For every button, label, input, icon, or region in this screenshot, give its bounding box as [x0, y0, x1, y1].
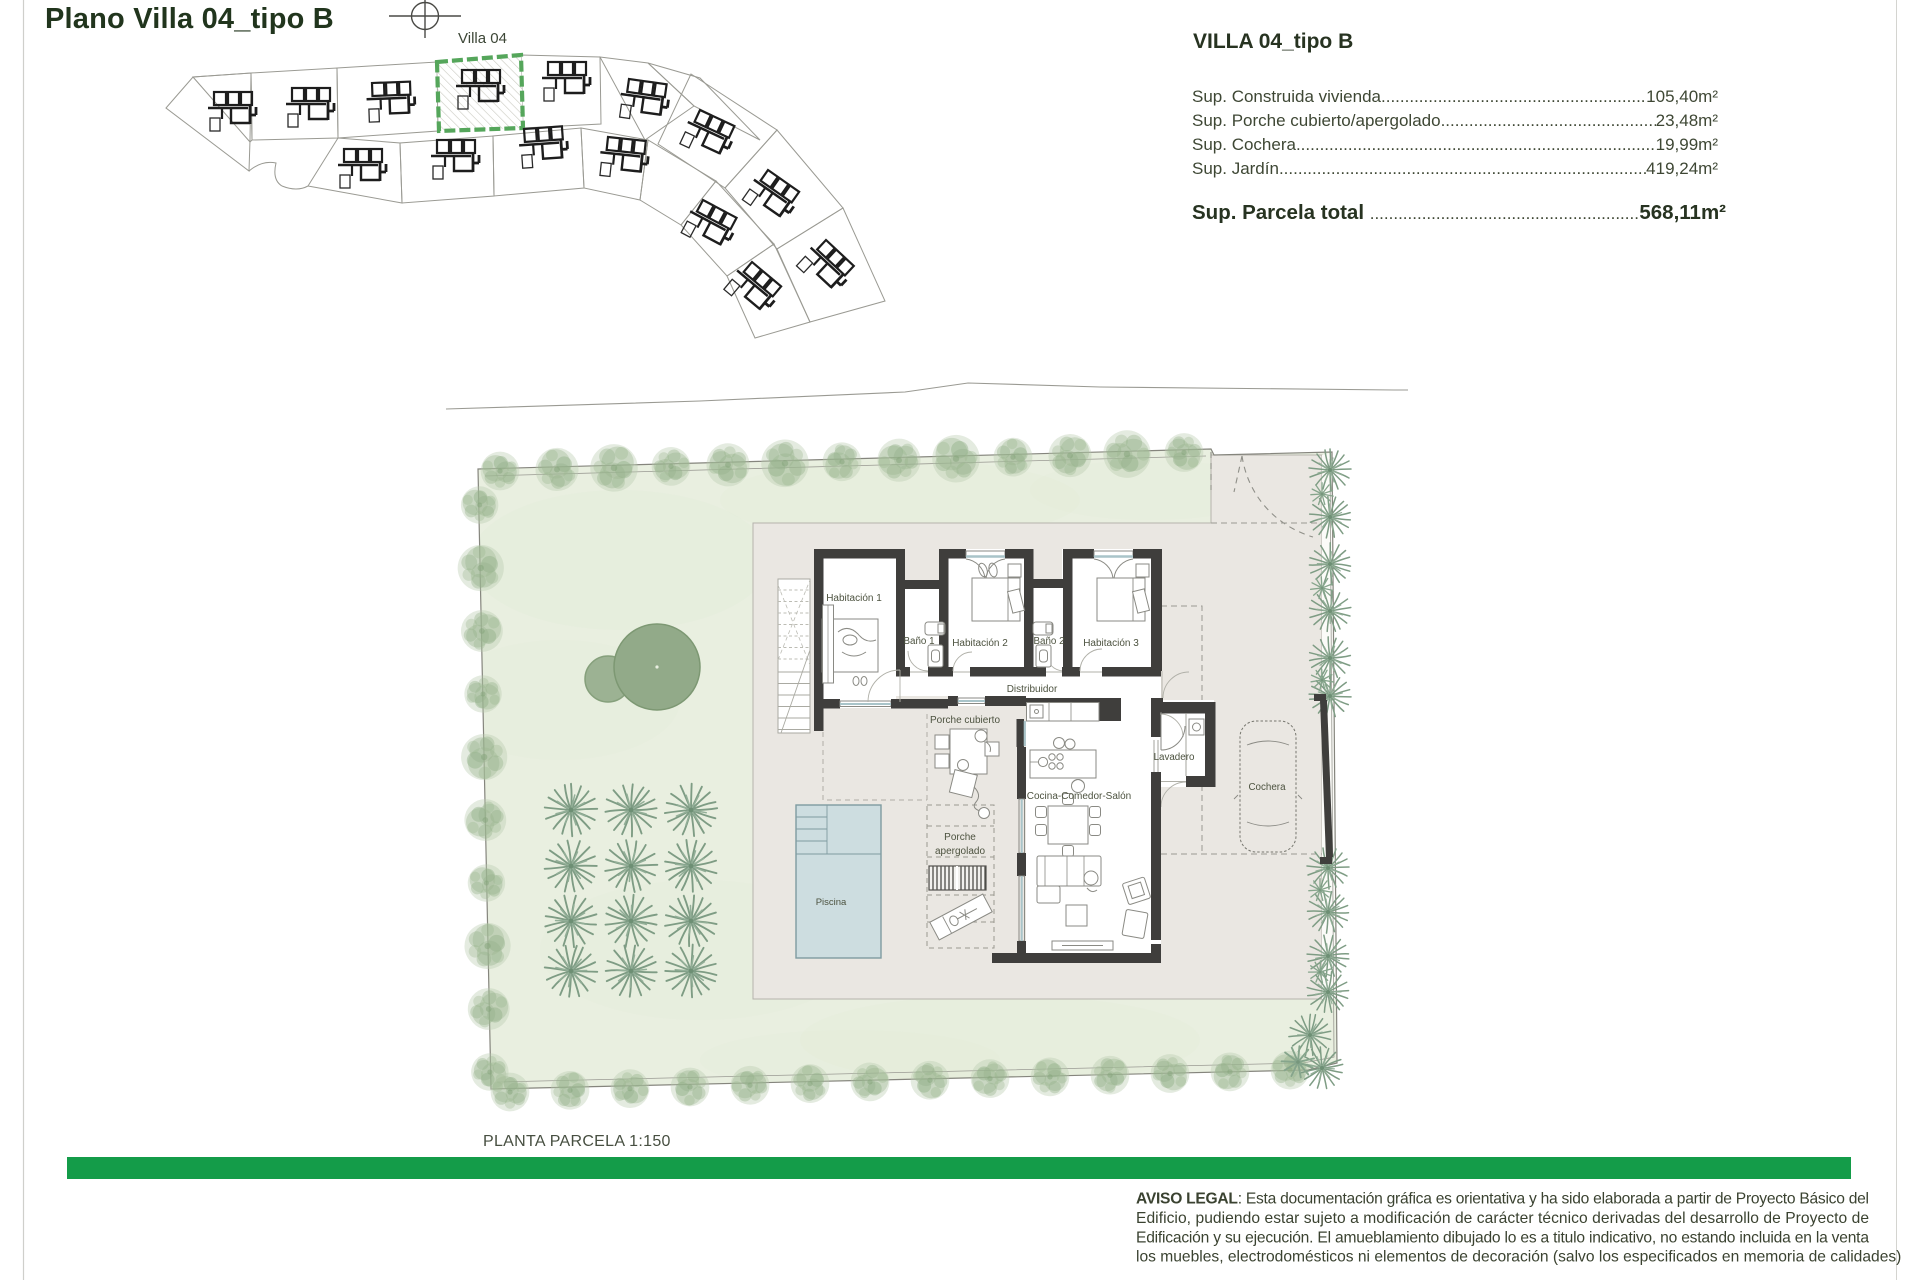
svg-text:Porche: Porche	[944, 832, 976, 843]
svg-text:los muebles, electrodomésticos: los muebles, electrodomésticos ni elemen…	[1136, 1249, 1901, 1266]
svg-text:Habitación 3: Habitación 3	[1083, 638, 1139, 649]
svg-text:Baño 1: Baño 1	[903, 636, 934, 647]
svg-text:AVISO LEGAL: Esta documentació: AVISO LEGAL: Esta documentación gráfica …	[1136, 1191, 1869, 1208]
svg-text:Cochera: Cochera	[1248, 782, 1286, 793]
svg-text:Porche cubierto: Porche cubierto	[930, 715, 1000, 726]
svg-text:Edificio, pudiendo estar sujet: Edificio, pudiendo estar sujeto a modifi…	[1136, 1210, 1869, 1227]
svg-text:Lavadero: Lavadero	[1154, 752, 1195, 763]
svg-text:apergolado: apergolado	[935, 846, 985, 857]
svg-text:Villa 04: Villa 04	[458, 30, 507, 47]
svg-text:Habitación 1: Habitación 1	[826, 593, 882, 604]
svg-text:Cocina-Comedor-Salón: Cocina-Comedor-Salón	[1027, 791, 1132, 802]
svg-text:Piscina: Piscina	[816, 897, 847, 908]
svg-text:Baño 2: Baño 2	[1033, 636, 1064, 647]
svg-text:Edificación y su ejecución. El: Edificación y su ejecución. El amueblami…	[1136, 1229, 1869, 1246]
svg-text:Distribuidor: Distribuidor	[1007, 684, 1058, 695]
svg-text:Habitación 2: Habitación 2	[952, 638, 1008, 649]
